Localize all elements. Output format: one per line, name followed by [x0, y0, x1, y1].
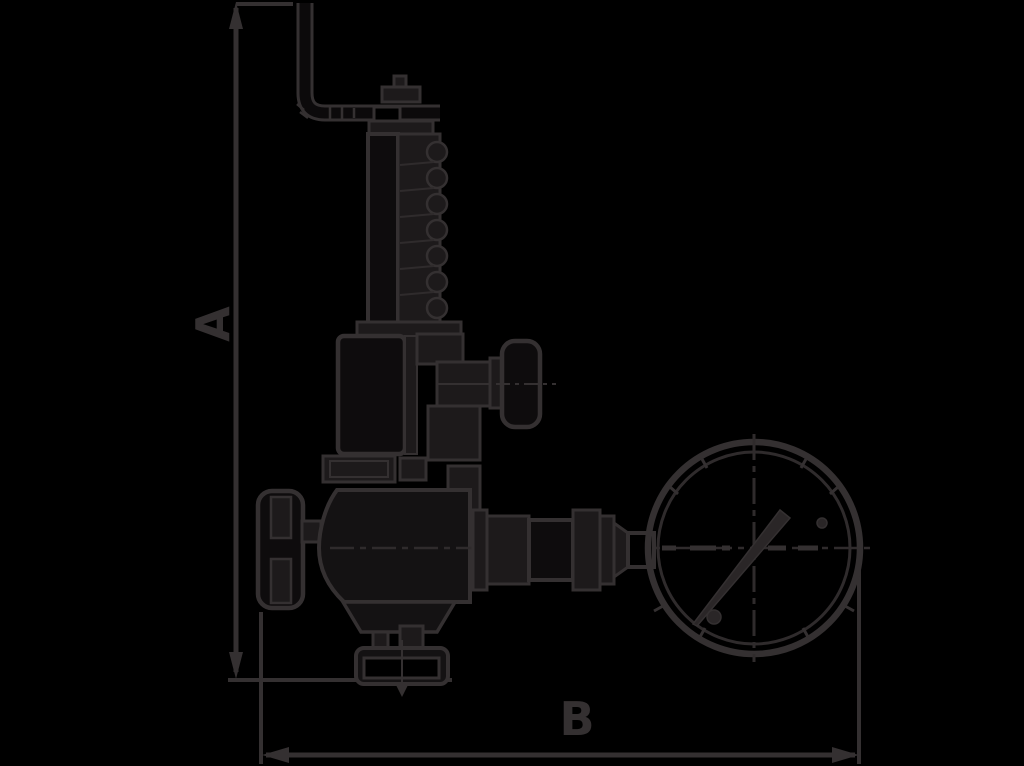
- flange-outer: [323, 456, 395, 482]
- body-shell: [319, 490, 470, 602]
- housing-tube: [368, 134, 398, 326]
- handwheel-panel-top: [271, 497, 291, 538]
- union-nut: [573, 510, 600, 590]
- outlet-stub-left: [373, 632, 388, 648]
- bonnet-strip: [405, 336, 417, 454]
- union-body: [487, 516, 529, 584]
- bonnet-riser: [428, 406, 480, 460]
- sleeve: [529, 520, 573, 580]
- outlet-stub-right: [400, 626, 423, 648]
- dimension-a-label: A: [186, 306, 240, 342]
- body-flange: [323, 456, 426, 482]
- piping-flange: [473, 510, 487, 590]
- handwheel-panel-bottom: [271, 559, 291, 603]
- reducer: [614, 523, 628, 577]
- drawing-canvas: A B: [0, 0, 1024, 766]
- dimension-b-label: B: [559, 692, 594, 746]
- valve-technical-drawing: A B: [0, 0, 1024, 766]
- adjusting-nut: [382, 87, 420, 102]
- collar: [600, 516, 614, 584]
- dial-screw-lower: [707, 610, 721, 624]
- bonnet-block: [417, 334, 463, 364]
- bonnet-shell: [338, 336, 405, 454]
- flange-right-block: [400, 458, 426, 480]
- dial-screw-upper: [817, 518, 827, 528]
